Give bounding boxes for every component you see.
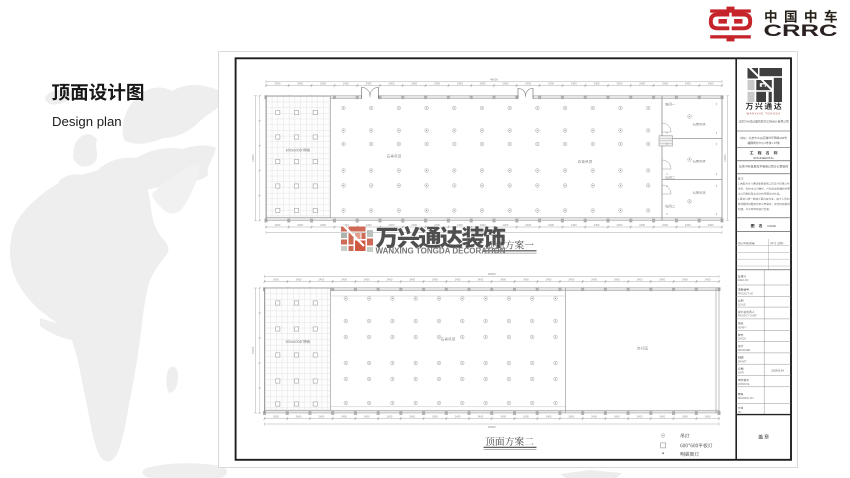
svg-text:2400: 2400 [639, 81, 645, 85]
svg-text:2400: 2400 [685, 81, 691, 85]
svg-text:2400: 2400 [318, 414, 324, 418]
svg-text:NO: NO [738, 411, 742, 414]
svg-text:2400: 2400 [708, 81, 714, 85]
svg-text:2400: 2400 [364, 277, 370, 281]
svg-text:CRRC: CRRC [764, 21, 838, 40]
svg-text:2400: 2400 [366, 81, 372, 85]
svg-text:AREA NO: AREA NO [738, 279, 749, 282]
svg-text:2400: 2400 [617, 81, 623, 85]
svg-text:2400: 2400 [500, 414, 506, 418]
svg-text:2400: 2400 [525, 81, 531, 85]
svg-text:CHECK: CHECK [738, 338, 747, 341]
svg-text:2400: 2400 [637, 277, 643, 281]
svg-text:2400: 2400 [591, 277, 597, 281]
svg-text:2400: 2400 [364, 414, 370, 418]
svg-text:48000: 48000 [490, 78, 498, 82]
svg-text:PROJECT CHIEF: PROJECT CHIEF [738, 315, 757, 318]
svg-text:2400: 2400 [409, 414, 415, 418]
svg-text:2400: 2400 [548, 81, 554, 85]
svg-text:2400: 2400 [523, 277, 529, 281]
svg-text:2400: 2400 [594, 223, 600, 227]
svg-text:2400: 2400 [500, 277, 506, 281]
svg-text:SCALE: SCALE [738, 303, 746, 306]
svg-text:2400: 2400 [273, 277, 279, 281]
svg-text:APPROVE: APPROVE [738, 383, 750, 386]
svg-text:2400: 2400 [477, 414, 483, 418]
svg-text:2400: 2400 [568, 277, 574, 281]
svg-text:2019.8.14: 2019.8.14 [771, 369, 784, 373]
svg-text:2400: 2400 [432, 414, 438, 418]
svg-text:48000: 48000 [488, 272, 496, 276]
svg-text:2400: 2400 [480, 81, 486, 85]
svg-text:2400: 2400 [682, 277, 688, 281]
svg-text:2400: 2400 [320, 223, 326, 227]
svg-text:2400: 2400 [387, 414, 393, 418]
svg-text:2400: 2400 [273, 414, 279, 418]
svg-text:2400: 2400 [568, 414, 574, 418]
svg-text:15000: 15000 [251, 154, 255, 162]
svg-text:PROJECT NO: PROJECT NO [738, 292, 754, 295]
svg-text:2400: 2400 [639, 223, 645, 227]
svg-text:2400: 2400 [682, 414, 688, 418]
svg-text:2400: 2400 [614, 414, 620, 418]
svg-text:2400: 2400 [296, 414, 302, 418]
svg-text:2400: 2400 [455, 414, 461, 418]
svg-text:15000: 15000 [251, 346, 255, 354]
svg-text:WANXING TONGDA: WANXING TONGDA [746, 112, 780, 116]
svg-text:2400: 2400 [341, 277, 347, 281]
svg-text:15000: 15000 [723, 154, 727, 162]
svg-text:2400: 2400 [409, 277, 415, 281]
svg-text:2400: 2400 [662, 81, 668, 85]
svg-text:2400: 2400 [432, 277, 438, 281]
svg-text:2400: 2400 [434, 81, 440, 85]
svg-text:2400: 2400 [546, 414, 552, 418]
svg-text:DRAWING NO: DRAWING NO [738, 397, 754, 400]
svg-text:2400: 2400 [297, 223, 303, 227]
svg-text:48000: 48000 [488, 425, 496, 429]
svg-text:2400: 2400 [591, 414, 597, 418]
svg-text:2400: 2400 [617, 223, 623, 227]
svg-text:2400: 2400 [708, 223, 714, 227]
svg-text:2400: 2400 [523, 414, 529, 418]
svg-text:2400: 2400 [662, 223, 668, 227]
svg-text:2400: 2400 [614, 277, 620, 281]
svg-text:VERIFY: VERIFY [738, 326, 747, 329]
svg-text:2400: 2400 [571, 223, 577, 227]
svg-text:2400: 2400 [275, 81, 281, 85]
svg-text:2400: 2400 [503, 81, 509, 85]
svg-text:2400: 2400 [387, 277, 393, 281]
svg-text:Design plan: Design plan [52, 114, 122, 129]
svg-text:DATE: DATE [738, 372, 745, 375]
svg-text:2400: 2400 [457, 81, 463, 85]
svg-text:2400: 2400 [571, 81, 577, 85]
svg-text:WANXING TONGDA DECORATION: WANXING TONGDA DECORATION [376, 247, 506, 256]
svg-text:ENGINEERING: ENGINEERING [753, 156, 774, 160]
svg-text:2400: 2400 [594, 81, 600, 85]
svg-text:2400: 2400 [705, 277, 711, 281]
svg-text:DR/ART: DR/ART [738, 360, 747, 363]
svg-text:NAME: NAME [767, 224, 776, 228]
svg-text:2400: 2400 [546, 277, 552, 281]
svg-text:DESIGNER: DESIGNER [738, 349, 751, 352]
svg-text:2400: 2400 [296, 277, 302, 281]
svg-text:2400: 2400 [341, 414, 347, 418]
svg-text:2400: 2400 [297, 81, 303, 85]
svg-text:2400: 2400 [275, 223, 281, 227]
svg-text:2400: 2400 [455, 277, 461, 281]
svg-text:2400: 2400 [411, 81, 417, 85]
svg-text:2400: 2400 [705, 414, 711, 418]
svg-text:2400: 2400 [389, 81, 395, 85]
svg-text:2400: 2400 [477, 277, 483, 281]
svg-text:2400: 2400 [343, 81, 349, 85]
svg-text:2400: 2400 [685, 223, 691, 227]
svg-text:2400: 2400 [659, 414, 665, 418]
svg-text:2400: 2400 [320, 81, 326, 85]
svg-text:2400: 2400 [637, 414, 643, 418]
svg-text:2400: 2400 [318, 277, 324, 281]
svg-text:2400: 2400 [659, 277, 665, 281]
